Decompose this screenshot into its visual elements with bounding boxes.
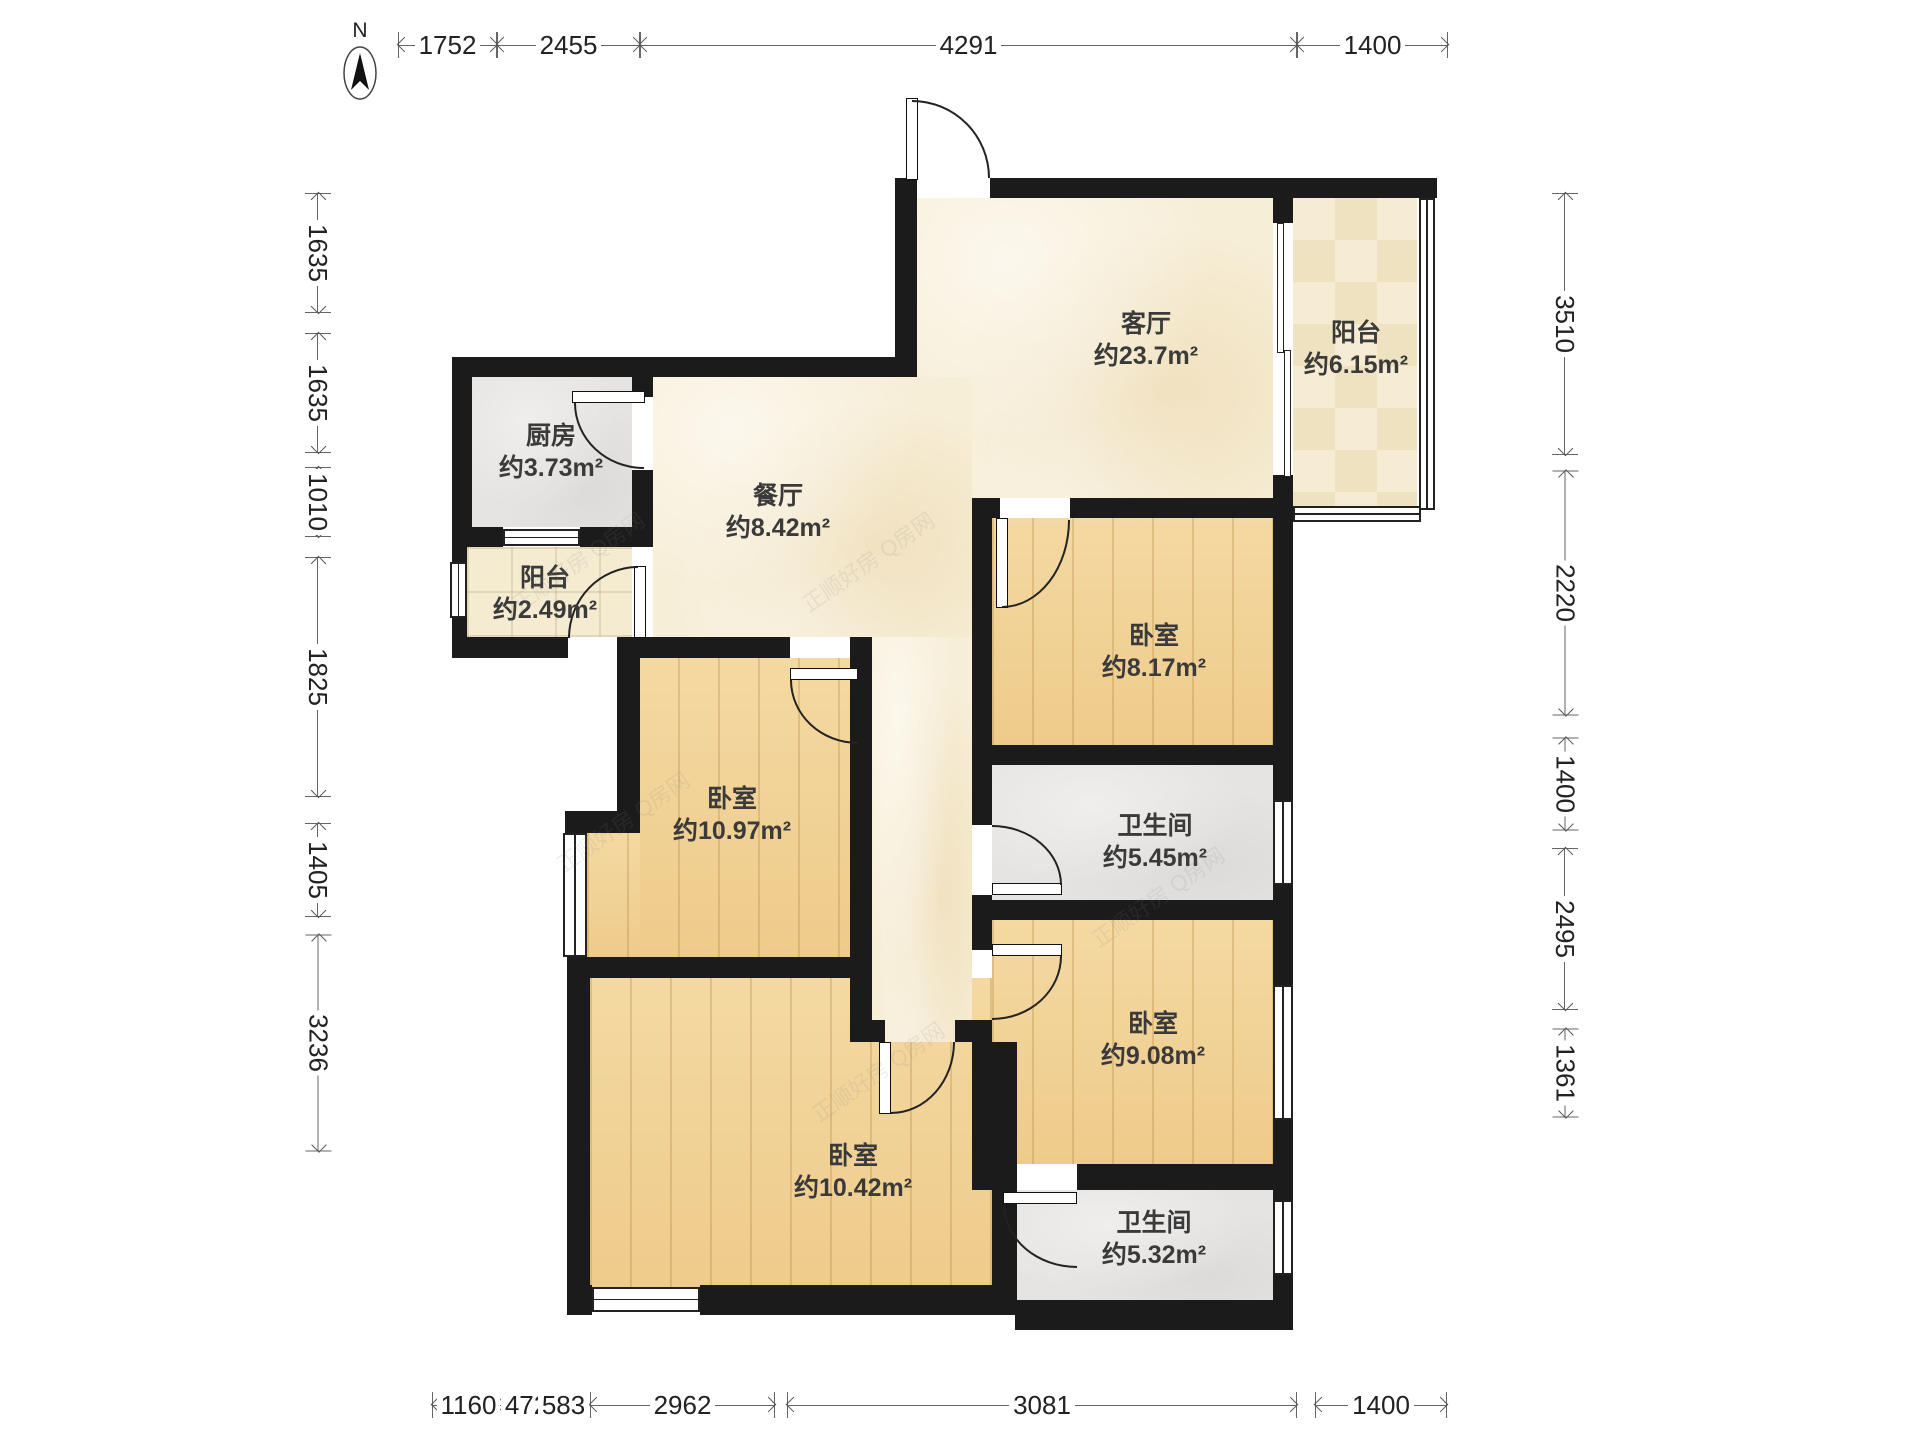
- wall-segment: [895, 178, 917, 377]
- window: [503, 529, 580, 546]
- room-name: 卫生间: [1103, 810, 1207, 842]
- door-leaf: [572, 391, 645, 403]
- room-label-bedroom-east: 卧室 约9.08m²: [1101, 1008, 1205, 1072]
- room-area: 约23.7m²: [1094, 340, 1198, 372]
- room-name: 卧室: [794, 1140, 912, 1172]
- wall-segment: [972, 498, 992, 825]
- dimension-top-1: 1752: [398, 30, 497, 60]
- room-label-balcony-right: 阳台 约6.15m²: [1304, 317, 1408, 381]
- window: [592, 1287, 700, 1312]
- room-name: 客厅: [1094, 308, 1198, 340]
- wall-segment: [452, 357, 653, 377]
- dimension-right-2: 2220: [1551, 471, 1581, 716]
- wall-segment: [452, 637, 568, 658]
- wall-segment: [452, 357, 472, 547]
- room-name: 卫生间: [1102, 1207, 1206, 1239]
- room-area: 约8.17m²: [1102, 652, 1206, 684]
- wall-segment: [1015, 1300, 1293, 1330]
- wall-segment: [972, 895, 992, 950]
- wall-segment: [850, 978, 872, 1020]
- sliding-door-panel: [1284, 350, 1291, 477]
- room-name: 阳台: [1304, 317, 1408, 349]
- wall-segment: [653, 357, 917, 377]
- dimension-top-2: 2455: [497, 30, 640, 60]
- window: [1419, 198, 1435, 510]
- room-area: 约6.15m²: [1304, 349, 1408, 381]
- dimension-bottom-5: 3081: [787, 1390, 1297, 1420]
- wall-segment: [1070, 498, 1273, 518]
- dimension-bottom-1: 1160: [432, 1390, 505, 1420]
- dimension-right-5: 1361: [1551, 1029, 1581, 1118]
- door-leaf: [790, 668, 858, 680]
- wall-segment: [1273, 475, 1293, 518]
- wall-segment: [972, 1020, 992, 1190]
- dimension-left-5: 1405: [303, 823, 333, 917]
- dimension-right-4: 2495: [1550, 848, 1580, 1010]
- room-name: 卧室: [1101, 1008, 1205, 1040]
- wall-segment: [567, 978, 590, 1305]
- room-name: 餐厅: [726, 480, 830, 512]
- north-label: N: [352, 19, 367, 42]
- wall-segment: [972, 745, 1273, 765]
- room-label-bathroom-south: 卫生间 约5.32m²: [1102, 1207, 1206, 1271]
- dimension-left-4: 1825: [303, 557, 333, 797]
- room-area: 约10.97m²: [673, 815, 791, 847]
- wall-segment: [1273, 178, 1293, 223]
- door-arc: [912, 100, 990, 178]
- wall-segment: [567, 1285, 592, 1315]
- dimension-left-2: 1635: [303, 333, 333, 453]
- wall-segment: [1273, 518, 1293, 800]
- door-leaf: [992, 944, 1062, 956]
- dimension-bottom-3: 583: [545, 1390, 582, 1420]
- room-name: 卧室: [1102, 620, 1206, 652]
- wall-segment: [700, 1285, 1015, 1315]
- window: [1273, 985, 1293, 1120]
- north-indicator: N: [336, 20, 384, 103]
- room-area: 约3.73m²: [499, 452, 603, 484]
- sliding-door-panel: [1277, 223, 1284, 353]
- north-arrow-icon: [337, 43, 383, 103]
- dimension-bottom-6: 1400: [1315, 1390, 1447, 1420]
- wall-segment: [992, 1164, 1017, 1190]
- room-label-bedroom-ne: 卧室 约8.17m²: [1102, 620, 1206, 684]
- wall-segment: [990, 178, 1437, 198]
- floor-plan-canvas: 客厅 约23.7m² 阳台 约6.15m² 厨房 约3.73m² 餐厅 约8.4…: [0, 0, 1920, 1440]
- dimension-left-1: 1635: [303, 193, 333, 313]
- window: [1273, 1200, 1293, 1275]
- room-label-bedroom-south: 卧室 约10.42m²: [794, 1140, 912, 1204]
- dimension-right-3: 1400: [1551, 738, 1581, 831]
- room-label-kitchen: 厨房 约3.73m²: [499, 420, 603, 484]
- room-area: 约9.08m²: [1101, 1040, 1205, 1072]
- dimension-top-3: 4291: [640, 30, 1297, 60]
- room-area: 约10.42m²: [794, 1172, 912, 1204]
- dimension-right-1: 3510: [1550, 193, 1580, 455]
- window: [1273, 800, 1293, 885]
- wall-segment: [452, 527, 503, 547]
- wall-segment: [567, 957, 872, 978]
- wall-segment: [1273, 1275, 1293, 1330]
- wall-segment: [850, 1020, 885, 1042]
- dimension-left-6: 3236: [304, 935, 334, 1152]
- window: [1293, 506, 1421, 522]
- room-area: 约8.42m²: [726, 512, 830, 544]
- room-name: 厨房: [499, 420, 603, 452]
- hallway-floor: [872, 637, 972, 1042]
- room-area: 约5.32m²: [1102, 1239, 1206, 1271]
- dimension-top-4: 1400: [1297, 30, 1448, 60]
- dimension-left-3: 1010: [303, 467, 333, 537]
- door-leaf: [1003, 1192, 1077, 1204]
- wall-segment: [1273, 885, 1293, 985]
- wall-segment: [1273, 1120, 1293, 1200]
- window: [450, 562, 467, 618]
- room-label-dining: 餐厅 约8.42m²: [726, 480, 830, 544]
- dimension-bottom-4: 2962: [590, 1390, 775, 1420]
- wall-segment: [617, 637, 640, 813]
- room-label-living: 客厅 约23.7m²: [1094, 308, 1198, 372]
- wall-segment: [640, 637, 790, 658]
- wall-segment: [1077, 1164, 1293, 1190]
